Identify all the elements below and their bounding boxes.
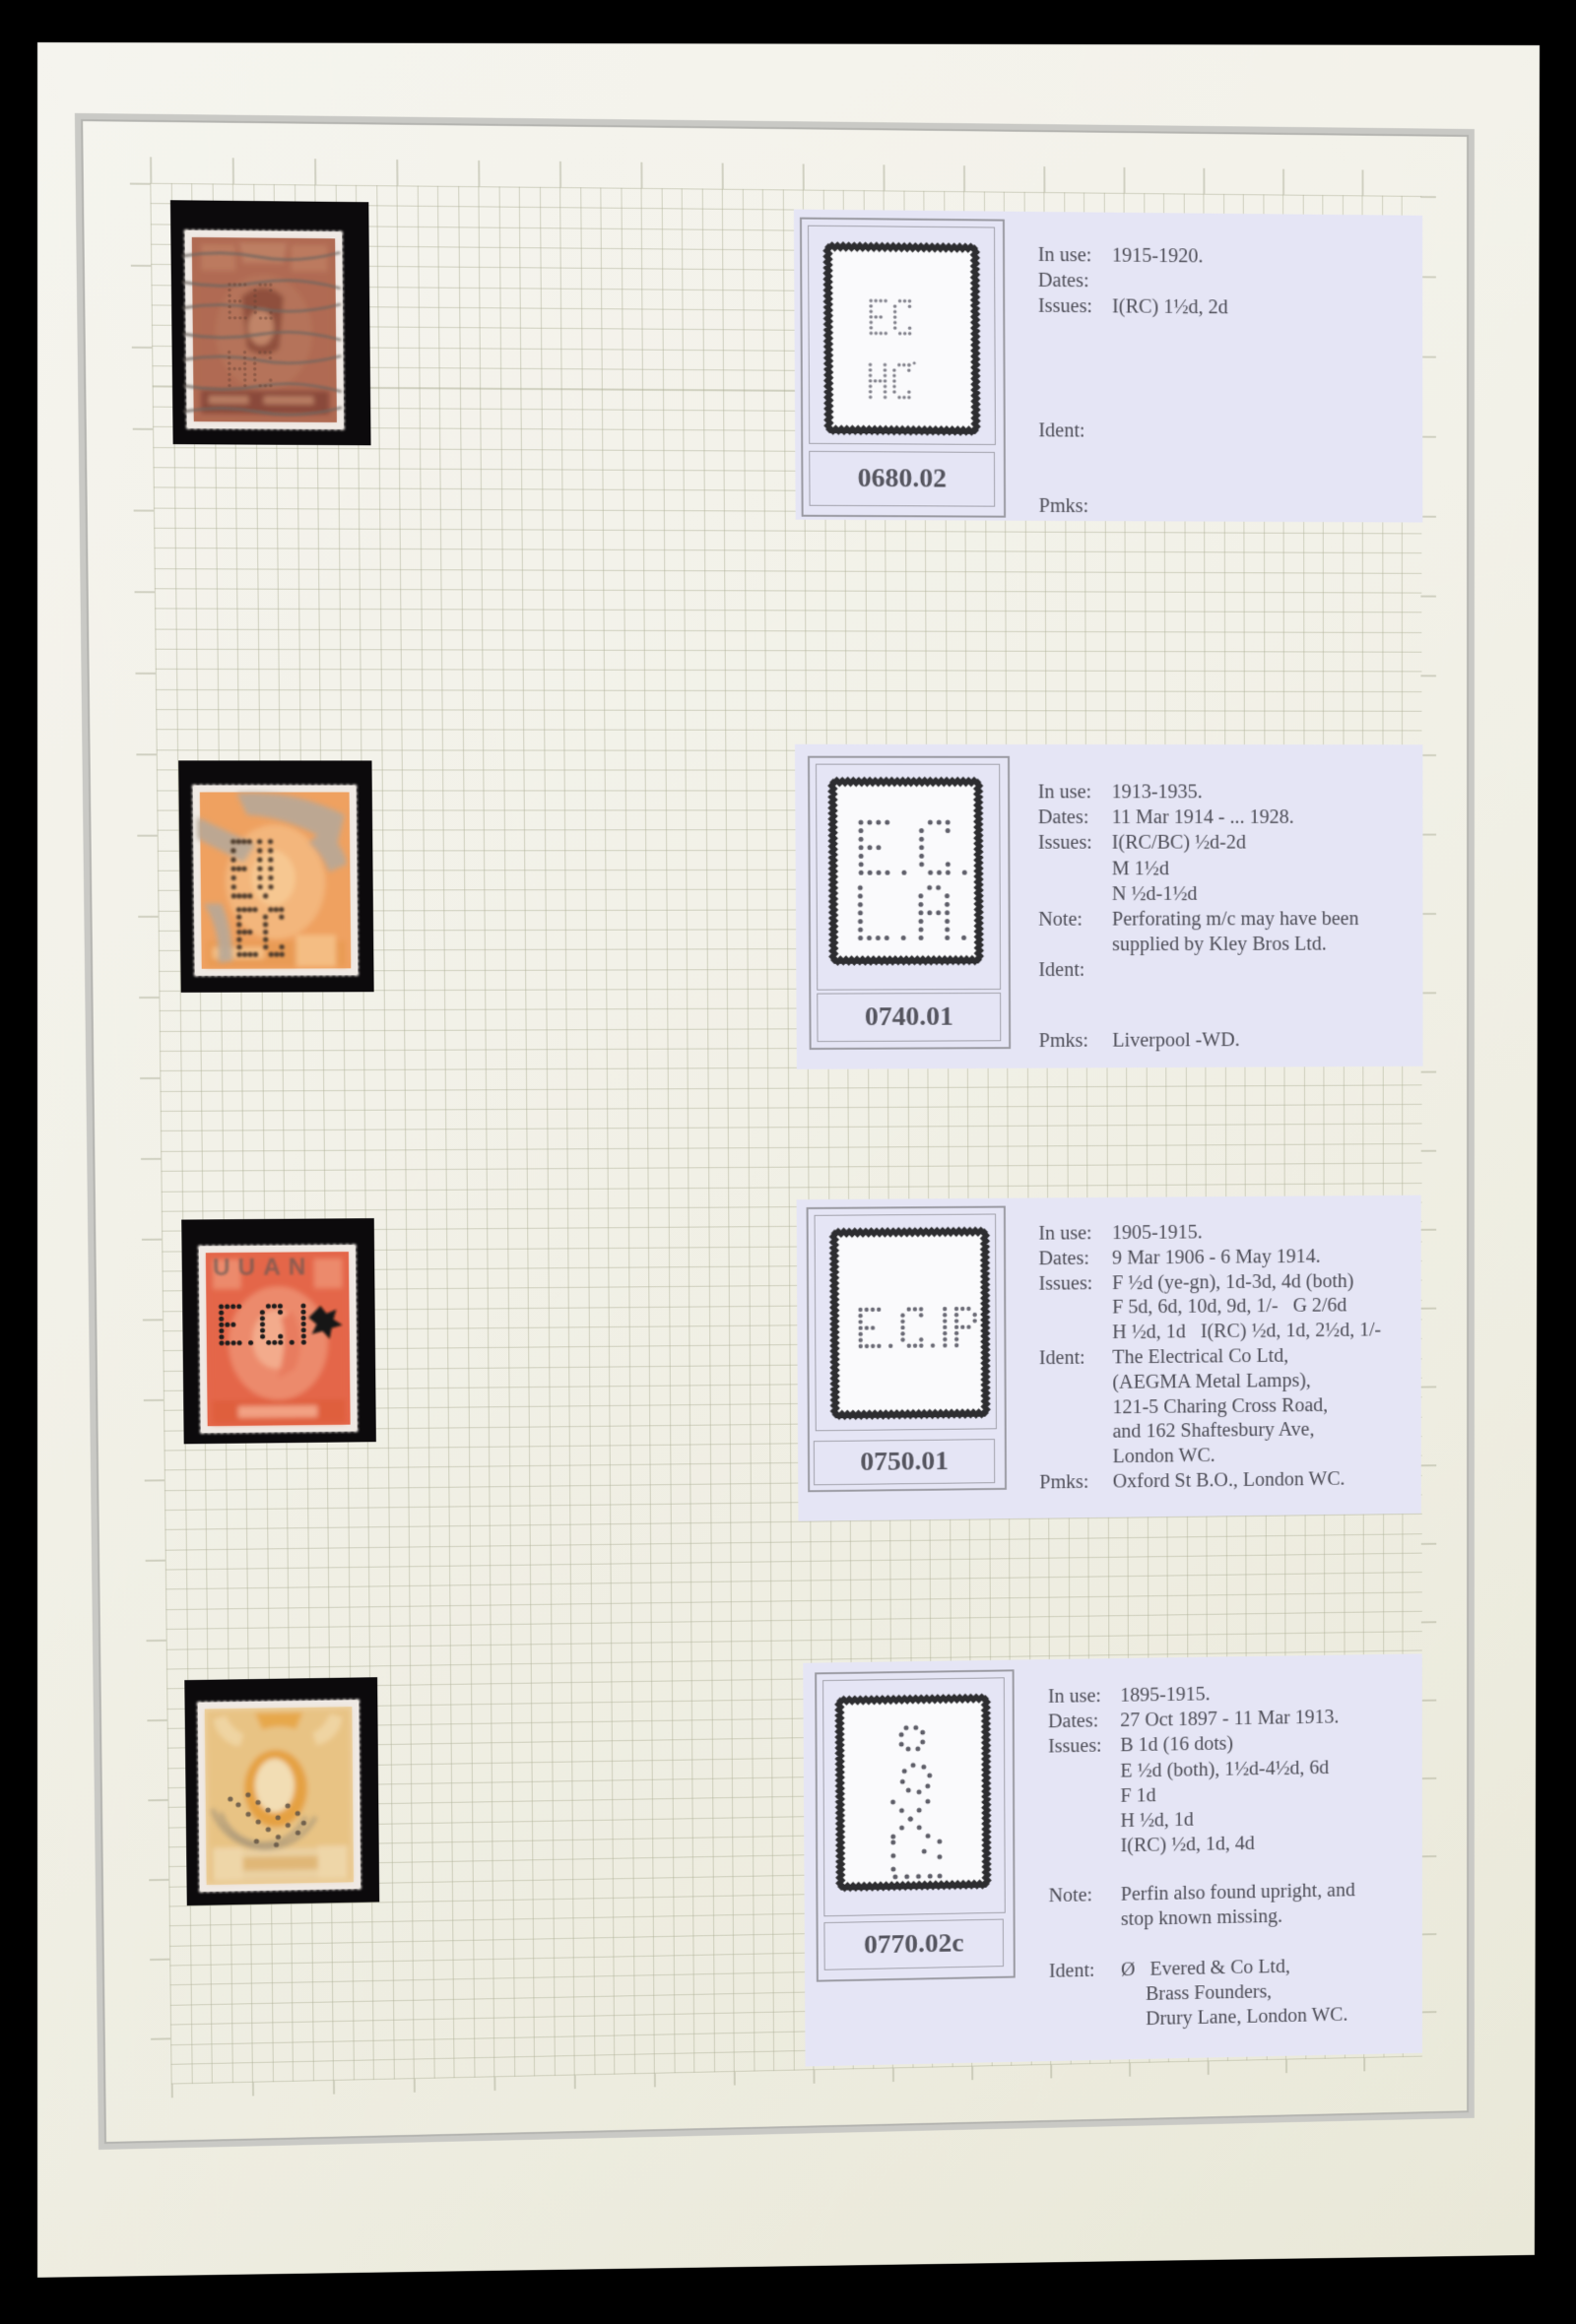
- svg-text:UUAN: UUAN: [213, 1255, 313, 1281]
